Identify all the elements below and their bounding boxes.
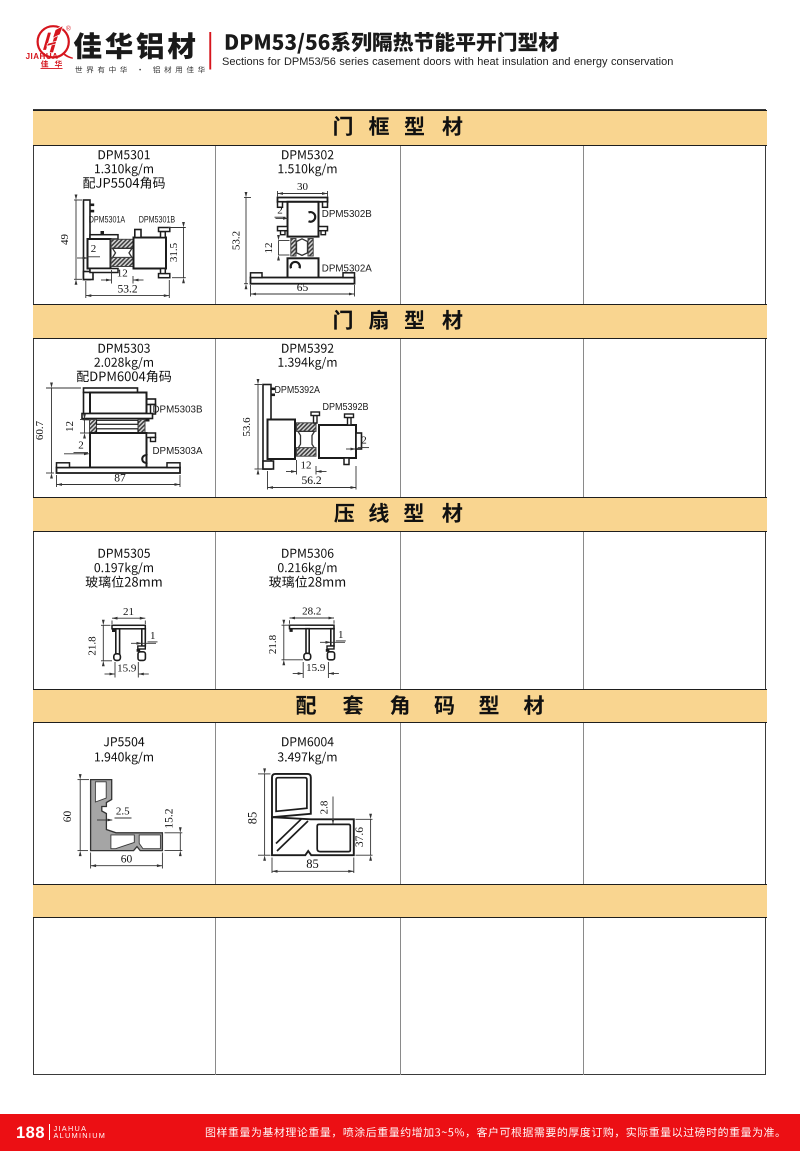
svg-text:37.6: 37.6: [354, 827, 366, 847]
svg-text:53.2: 53.2: [230, 231, 242, 250]
svg-text:DPM5301A: DPM5301A: [89, 214, 126, 225]
svg-text:®: ®: [66, 25, 71, 33]
svg-text:15.2: 15.2: [164, 808, 176, 828]
svg-text:1: 1: [150, 630, 156, 642]
svg-text:DPM5392B: DPM5392B: [323, 402, 369, 413]
svg-text:60.7: 60.7: [34, 420, 46, 440]
svg-text:87: 87: [114, 472, 126, 484]
svg-text:65: 65: [297, 282, 309, 294]
svg-text:49: 49: [59, 234, 71, 246]
svg-text:85: 85: [245, 812, 259, 825]
svg-text:31.5: 31.5: [168, 242, 180, 262]
svg-text:60: 60: [62, 811, 74, 823]
svg-text:1: 1: [338, 629, 344, 641]
svg-text:56.2: 56.2: [301, 475, 321, 487]
svg-text:21: 21: [123, 606, 134, 618]
svg-text:15.9: 15.9: [306, 662, 326, 674]
svg-text:15.9: 15.9: [117, 662, 137, 674]
svg-text:21.8: 21.8: [87, 636, 99, 656]
svg-text:2: 2: [91, 243, 97, 255]
svg-text:85: 85: [306, 857, 319, 871]
svg-text:12: 12: [301, 459, 312, 471]
svg-text:2: 2: [361, 435, 367, 447]
svg-text:53.6: 53.6: [241, 417, 253, 437]
svg-text:DPM5302B: DPM5302B: [322, 209, 372, 220]
svg-text:28.2: 28.2: [302, 606, 321, 618]
svg-text:30: 30: [297, 181, 309, 193]
svg-text:2.5: 2.5: [116, 805, 130, 817]
svg-text:DPM5392A: DPM5392A: [275, 385, 321, 396]
svg-text:2: 2: [277, 205, 283, 217]
svg-text:2: 2: [78, 440, 84, 452]
svg-text:DPM5303A: DPM5303A: [153, 446, 203, 457]
svg-text:DPM5302A: DPM5302A: [322, 263, 372, 274]
svg-text:60: 60: [121, 854, 133, 866]
svg-text:12: 12: [263, 243, 275, 254]
svg-text:JIAHUA: JIAHUA: [26, 52, 59, 61]
svg-text:21.8: 21.8: [267, 634, 279, 654]
svg-text:DPM5303B: DPM5303B: [153, 405, 203, 416]
svg-text:2.8: 2.8: [319, 800, 331, 814]
svg-text:12: 12: [64, 421, 76, 432]
svg-text:12: 12: [117, 268, 128, 280]
svg-text:DPM5301B: DPM5301B: [139, 214, 176, 225]
svg-text:53.2: 53.2: [117, 284, 137, 296]
